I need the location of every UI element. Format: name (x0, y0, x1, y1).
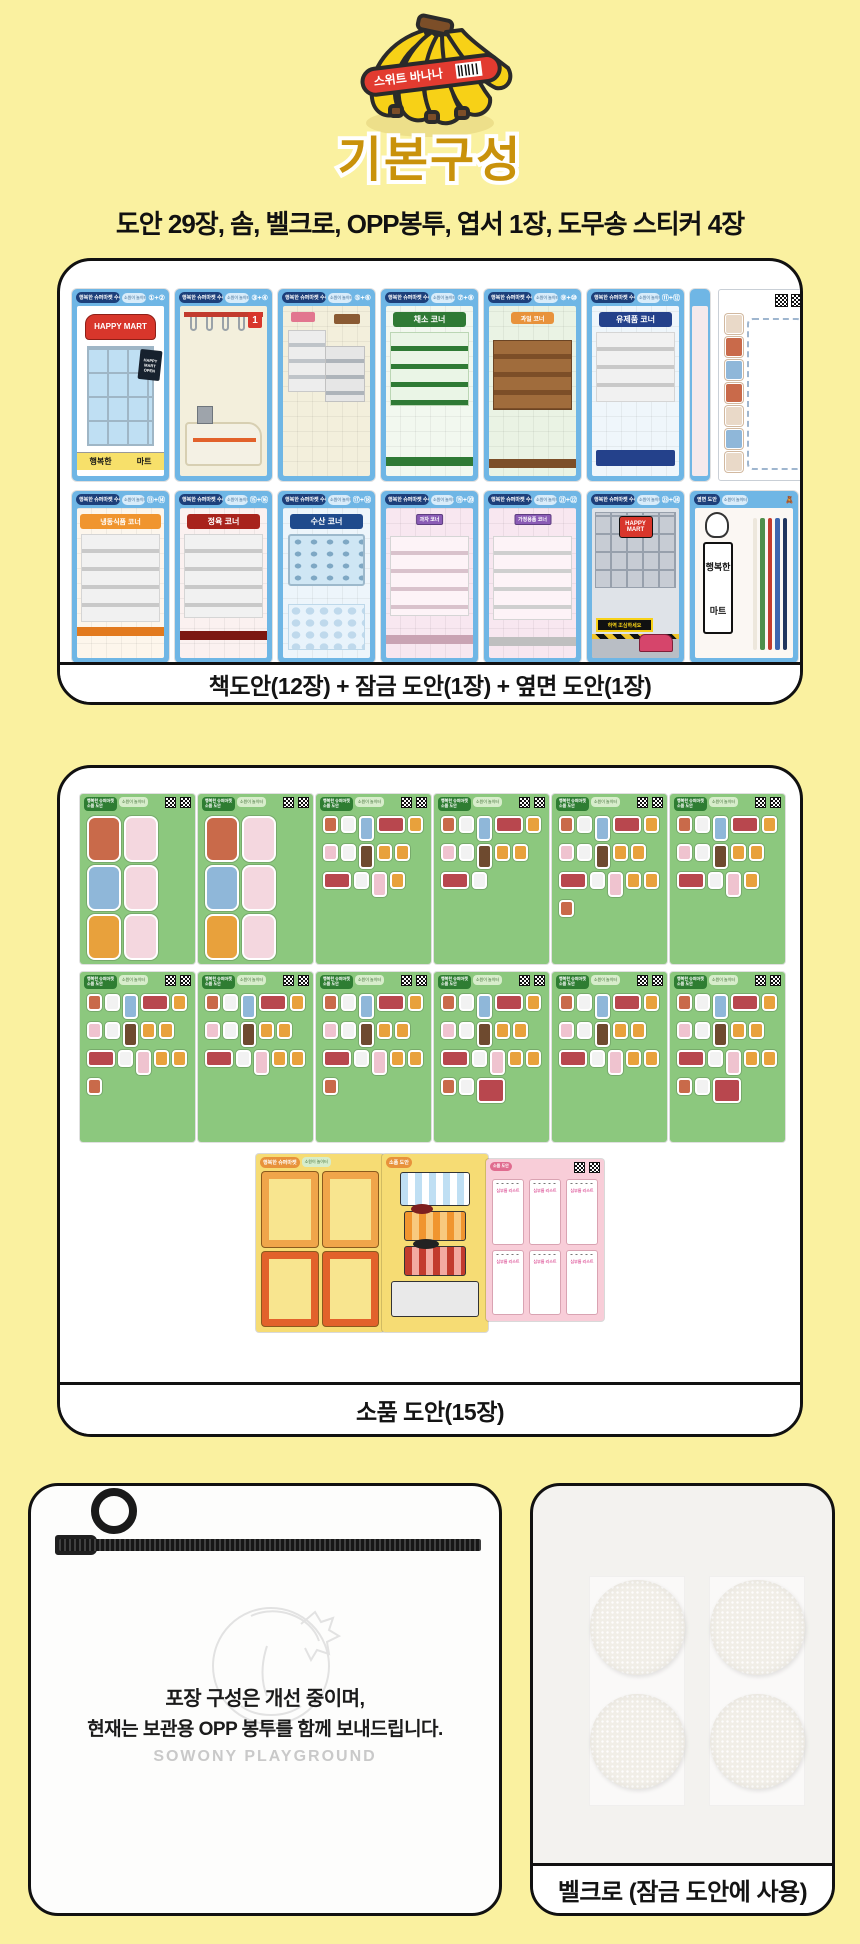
sticker-chip (477, 816, 492, 841)
sticker-chip (608, 872, 623, 897)
sheet-header-sub: 소원이 놀이터 (473, 797, 502, 807)
sticker (725, 383, 743, 403)
velcro-dot (710, 1580, 805, 1675)
corner-banner: 유제품 코너 (599, 312, 672, 327)
book-pages-row-2: 행복한 슈퍼마켓 수록 도안소원이 놀이터⑬+⑭ 냉동식품 코너 행복한 슈퍼마… (72, 491, 803, 663)
sticker-chip (559, 1050, 587, 1067)
sheet-header-label: 소품 도안 (386, 1157, 412, 1168)
opp-note-line2: 현재는 보관용 OPP 봉투를 함께 보내드립니다. (31, 1714, 499, 1741)
page-header-label: 행복한 슈퍼마켓 수록 도안 (385, 292, 429, 303)
appliance-sheet: 소품 도안 (382, 1154, 488, 1332)
page-header-sub: 소원이 놀이터 (534, 495, 557, 505)
page-number: ⑲+⑳ (456, 495, 474, 505)
sheet-header: 행복한 슈퍼마켓소품 도안소원이 놀이터 (556, 797, 663, 811)
sticker-chip (87, 865, 121, 911)
memo-pad: 심부름 리스트 (529, 1179, 561, 1245)
sticker-chip (762, 1050, 777, 1067)
memo-pad: 심부름 리스트 (492, 1179, 524, 1245)
door-panel (323, 1252, 379, 1327)
book-page-aisle: 행복한 슈퍼마켓 수록 도안소원이 놀이터⑤+⑥ (278, 289, 375, 481)
velcro-caption: 벨크로 (잠금 도안에 사용) (533, 1863, 832, 1913)
shelf-base (180, 631, 267, 640)
sticker-chip (259, 1022, 274, 1039)
qr-code (165, 797, 176, 808)
book-page-meat: 행복한 슈퍼마켓 수록 도안소원이 놀이터⑮+⑯ 정육 코너 (175, 491, 272, 663)
sticker-sheet-produce: 행복한 슈퍼마켓소품 도안소원이 놀이터 (670, 794, 785, 964)
sheet-header-sub: 소원이 놀이터 (355, 797, 384, 807)
sticker-chip (626, 1050, 641, 1067)
sticker-chip (644, 994, 659, 1011)
sheet-header-sub: 소원이 놀이터 (237, 975, 266, 985)
cash-register (197, 406, 213, 424)
sticker-chip (677, 1050, 705, 1067)
sticker-chip (613, 994, 641, 1011)
fruit-wood-shelves (493, 340, 572, 410)
sheet-header: 행복한 슈퍼마켓소품 도안소원이 놀이터 (202, 975, 309, 989)
book-page-dairy: 행복한 슈퍼마켓 수록 도안소원이 놀이터⑪+⑫ 유제품 코너 (587, 289, 684, 481)
sticker-chip (590, 1050, 605, 1067)
page-number: ①+② (148, 294, 165, 302)
sticker-chip (372, 1050, 387, 1075)
lock-cut-outline (747, 318, 803, 470)
sticker-chip (713, 1078, 741, 1103)
aisle-art (283, 306, 370, 476)
book-page-checkout: 행복한 슈퍼마켓 수록 도안소원이 놀이터③+④ 1 (175, 289, 272, 481)
sticker-chip (695, 1022, 710, 1039)
door-panel (323, 1172, 379, 1247)
side-sheet-art: 행복한 마트 (695, 508, 793, 658)
sticker-chip (526, 1050, 541, 1067)
sheet-header: 행복한 슈퍼마켓소품 도안소원이 놀이터 (320, 797, 427, 811)
qr-code (416, 975, 427, 986)
sticker-chip (205, 994, 220, 1011)
sticker-chip (242, 816, 276, 862)
sticker-chip (677, 816, 692, 833)
sticker-grid (85, 814, 190, 959)
sticker-chip (495, 1022, 510, 1039)
sticker-chip (695, 994, 710, 1011)
sticker-chip (695, 816, 710, 833)
checkout-counter-sticker (391, 1281, 479, 1317)
storefront-art: HAPPY MART HAPPY MART OPEN 행복한 마트 (77, 306, 164, 476)
sticker-chip (323, 1050, 351, 1067)
page-header-label: 행복한 슈퍼마켓 수록 도안 (488, 494, 532, 505)
page-number: ⑬+⑭ (147, 495, 165, 505)
sticker-chip (341, 994, 356, 1011)
sheet-header: 행복한 슈퍼마켓소품 도안소원이 놀이터 (556, 975, 663, 989)
sticker-chip (87, 1022, 102, 1039)
sticker-chip (205, 816, 239, 862)
sheet-header-label: 행복한 슈퍼마켓 (260, 1157, 300, 1168)
household-art: 가정용품 코너 (489, 508, 576, 658)
sticker-chip (441, 1022, 456, 1039)
card2-caption: 소품 도안(15장) (60, 1382, 800, 1434)
sticker-chip (613, 816, 641, 833)
sticker-sheet-fish-meat: 행복한 슈퍼마켓소품 도안소원이 놀이터 (316, 972, 431, 1142)
frozen-shelves (81, 534, 160, 622)
sticker-chip (644, 816, 659, 833)
sticker-chip (323, 816, 338, 833)
sheet-header-sub: 소원이 놀이터 (355, 975, 384, 985)
sticker-chip (241, 994, 256, 1019)
sticker-chip (359, 816, 374, 841)
sheet-header-label: 행복한 슈퍼마켓소품 도안 (320, 975, 353, 989)
sticker-grid (675, 814, 780, 959)
sticker-chip (341, 844, 356, 861)
memo-pad: 심부름 리스트 (566, 1250, 598, 1316)
sheet-header-label: 행복한 슈퍼마켓소품 도안 (320, 797, 353, 811)
sticker-chip (242, 914, 276, 960)
sticker-chip (441, 994, 456, 1011)
sticker-chip (377, 844, 392, 861)
lock-sheet (718, 289, 803, 481)
page-subtitle: 도안 29장, 솜, 벨크로, OPP봉투, 엽서 1장, 도무송 스티커 4장 (0, 204, 860, 241)
sticker-grid (203, 992, 308, 1137)
qr-code (283, 797, 294, 808)
zipper-ring-pull (91, 1488, 137, 1534)
qr-code (283, 975, 294, 986)
shelf-unit (288, 330, 326, 392)
sticker-sheet-characters-2: 행복한 슈퍼마켓소품 도안소원이 놀이터 (198, 794, 313, 964)
sheet-header: 행복한 슈퍼마켓소품 도안소원이 놀이터 (320, 975, 427, 989)
sticker-chip (354, 1050, 369, 1067)
sticker-chip (495, 844, 510, 861)
sticker-chip (124, 816, 158, 862)
sheet-header: 행복한 슈퍼마켓소품 도안소원이 놀이터 (674, 797, 781, 811)
sticker-chip (731, 844, 746, 861)
book-pages-card: 행복한 슈퍼마켓 수록 도안소원이 놀이터①+② HAPPY MART HAPP… (57, 258, 803, 705)
sticker-chip (472, 1050, 487, 1067)
sticker-chip (359, 994, 374, 1019)
bottom-sign-right: 마트 (137, 456, 152, 467)
corner-mini-sign: 과자 코너 (416, 514, 444, 525)
qr-code (770, 797, 781, 808)
sticker (725, 337, 743, 357)
sticker-chip (472, 872, 487, 889)
sticker-chip (459, 994, 474, 1011)
sticker-chip (708, 872, 723, 889)
hazard-sign: 하역 조심하세요 (596, 618, 653, 632)
qr-code (401, 797, 412, 808)
sticker-chip (613, 844, 628, 861)
prop-sheets-card: 행복한 슈퍼마켓소품 도안소원이 놀이터 행복한 슈퍼마켓소품 도안소원이 놀이… (57, 765, 803, 1437)
sticker-chip (626, 872, 641, 889)
shelf-base (386, 457, 473, 466)
sticker-chip (441, 872, 469, 889)
sticker-chip (559, 994, 574, 1011)
book-page-fruit: 행복한 슈퍼마켓 수록 도안소원이 놀이터⑨+⑩ 과일 코너 (484, 289, 581, 481)
corner-banner: 정육 코너 (187, 514, 260, 529)
sheet-header-sub: 소원이 놀이터 (119, 797, 148, 807)
sticker-chip (277, 1022, 292, 1039)
page-header-sub: 소원이 놀이터 (122, 495, 145, 505)
sticker-chip (495, 816, 523, 833)
sticker-chip (744, 1050, 759, 1067)
sticker-chip (595, 994, 610, 1019)
sticker-chip (124, 914, 158, 960)
ice-bin (288, 604, 365, 650)
vertical-mart-sign: 행복한 마트 (703, 542, 733, 634)
sticker-chip (290, 1050, 305, 1067)
corner-banner: 과일 코너 (511, 312, 555, 324)
sticker-chip (559, 872, 587, 889)
sticker-chip (323, 1022, 338, 1039)
sticker-chip (677, 1078, 692, 1095)
sticker-chip (223, 994, 238, 1011)
sticker (725, 429, 743, 449)
sticker-chip (395, 1022, 410, 1039)
sticker-chip (242, 865, 276, 911)
sticker-chip (677, 872, 705, 889)
page-number: ⑤+⑥ (354, 294, 371, 302)
sticker-sheet-bottles: 행복한 슈퍼마켓소품 도안소원이 놀이터 (552, 794, 667, 964)
green-sheets-row-1: 행복한 슈퍼마켓소품 도안소원이 놀이터 행복한 슈퍼마켓소품 도안소원이 놀이… (80, 794, 785, 964)
sticker-sheet-jars: 행복한 슈퍼마켓소품 도안소원이 놀이터 (552, 972, 667, 1142)
sticker-chip (477, 1022, 492, 1047)
sheet-header-label: 행복한 슈퍼마켓소품 도안 (556, 975, 589, 989)
sheet-header-sub: 소원이 놀이터 (302, 1157, 331, 1167)
qr-code (574, 1162, 585, 1173)
sticker-chip (731, 816, 759, 833)
door-panel (262, 1252, 318, 1327)
sheet-header-label: 행복한 슈퍼마켓소품 도안 (556, 797, 589, 811)
qr-code (534, 975, 545, 986)
qr-code (791, 294, 803, 307)
page-header-label: 행복한 슈퍼마켓 수록 도안 (179, 292, 223, 303)
sticker-chip (577, 994, 592, 1011)
sticker-chip (87, 994, 102, 1011)
shelf-unit (325, 346, 365, 402)
sheet-header-label: 행복한 슈퍼마켓소품 도안 (84, 975, 117, 989)
sticker-chip (708, 1050, 723, 1067)
opp-note-line1: 포장 구성은 개선 중이며, (31, 1682, 499, 1711)
mini-fridge-sticker (400, 1172, 470, 1206)
sheet-header-sub: 소원이 놀이터 (591, 975, 620, 985)
qr-code (589, 1162, 600, 1173)
sign-text-top: 행복한 (706, 560, 731, 573)
qr-code (652, 975, 663, 986)
memo-sheet: 소품 도안 심부름 리스트 심부름 리스트 심부름 리스트 심부름 리스트 심부… (486, 1159, 604, 1321)
sticker-chip (354, 872, 369, 889)
lock-sticker-column (725, 314, 743, 472)
bottom-sign-left: 행복한 (90, 456, 112, 467)
warmer-red-sticker (404, 1246, 466, 1276)
sticker-chip (141, 994, 169, 1011)
sticker-chip (459, 844, 474, 861)
sticker-chip (87, 816, 121, 862)
door-panel (262, 1172, 318, 1247)
sticker-chip (677, 1022, 692, 1039)
sticker-chip (526, 816, 541, 833)
sticker-chip (390, 872, 405, 889)
page-header-label: 행복한 슈퍼마켓 수록 도안 (591, 494, 635, 505)
dairy-art: 유제품 코너 (592, 306, 679, 476)
sticker-chip (223, 1022, 238, 1039)
sticker-chip (513, 1022, 528, 1039)
side-sheet: 옆면 도안소원이 놀이터🧸 행복한 마트 (690, 491, 798, 663)
sticker-sheet-snacks: 행복한 슈퍼마켓소품 도안소원이 놀이터 (434, 972, 549, 1142)
sticker-chip (477, 844, 492, 869)
sticker-chip (559, 844, 574, 861)
sticker-chip (359, 844, 374, 869)
sticker-chip (595, 1022, 610, 1047)
zipper-bar (59, 1539, 481, 1551)
sticker-chip (441, 1050, 469, 1067)
sticker-chip (644, 1050, 659, 1067)
sticker-chip (595, 844, 610, 869)
page-number: 🧸 (785, 496, 794, 504)
sticker-chip (323, 844, 338, 861)
sticker-chip (577, 844, 592, 861)
hook (238, 317, 245, 331)
sticker-grid (321, 992, 426, 1137)
sticker-chip (577, 816, 592, 833)
pink-car (639, 634, 673, 652)
page-header-label: 행복한 슈퍼마켓 수록 도안 (488, 292, 532, 303)
velcro-dot (710, 1694, 805, 1789)
storefront-bottom-sign: 행복한 마트 (77, 452, 164, 470)
sheet-header-sub: 소원이 놀이터 (709, 975, 738, 985)
sticker-grid (321, 814, 426, 959)
sheet-header-label: 행복한 슈퍼마켓소품 도안 (202, 797, 235, 811)
page-header-sub: 소원이 놀이터 (637, 293, 660, 303)
sticker-chip (254, 1050, 269, 1075)
sticker-chip (713, 816, 728, 841)
sticker-chip (677, 994, 692, 1011)
sign-text-bottom: 마트 (710, 604, 727, 617)
sticker-chip (477, 1078, 505, 1103)
sticker-sheet-deli: 행복한 슈퍼마켓소품 도안소원이 놀이터 (198, 972, 313, 1142)
household-shelves (493, 536, 572, 620)
sheet-header-label: 소품 도안 (490, 1162, 512, 1171)
lane-number-sign: 1 (248, 312, 262, 328)
sticker-chip (377, 816, 405, 833)
sticker-chip (595, 816, 610, 841)
sticker-chip (377, 1022, 392, 1039)
qr-code (770, 975, 781, 986)
sticker-chip (441, 1078, 456, 1095)
sticker-chip (87, 914, 121, 960)
qr-code (401, 975, 412, 986)
vegetable-art: 채소 코너 (386, 306, 473, 476)
sheet-header-label: 행복한 슈퍼마켓소품 도안 (674, 975, 707, 989)
sticker-chip (459, 1022, 474, 1039)
sheet-header-label: 행복한 슈퍼마켓소품 도안 (438, 975, 471, 989)
green-sheets-row-2: 행복한 슈퍼마켓소품 도안소원이 놀이터 행복한 슈퍼마켓소품 도안소원이 놀이… (80, 972, 785, 1142)
qr-code (637, 975, 648, 986)
sticker-chip (272, 1050, 287, 1067)
sticker-chip (477, 994, 492, 1019)
sticker (725, 360, 743, 380)
sticker-grid (203, 814, 308, 959)
sheet-header: 행복한 슈퍼마켓소품 도안소원이 놀이터 (202, 797, 309, 811)
sticker-chip (124, 865, 158, 911)
sheet-header: 행복한 슈퍼마켓소품 도안소원이 놀이터 (84, 797, 191, 811)
sticker-chip (726, 1050, 741, 1075)
qr-code (519, 797, 530, 808)
sticker-chip (159, 1022, 174, 1039)
sticker-chip (608, 1050, 623, 1075)
page-header-label: 행복한 슈퍼마켓 수록 도안 (282, 494, 326, 505)
page-number: ⑦+⑧ (457, 294, 474, 302)
page-header-sub: 소원이 놀이터 (328, 293, 352, 303)
sticker-chip (105, 994, 120, 1011)
sticker-chip (441, 816, 456, 833)
sticker-chip (613, 1022, 628, 1039)
sheet-header-label: 행복한 슈퍼마켓소품 도안 (438, 797, 471, 811)
memo-pad: 심부름 리스트 (529, 1250, 561, 1316)
sticker-chip (559, 816, 574, 833)
sticker-grid (85, 992, 190, 1137)
meat-shelves (184, 534, 263, 618)
corner-banner: 냉동식품 코너 (80, 514, 160, 529)
page-number: ③+④ (251, 294, 268, 302)
sticker-chip (236, 1050, 251, 1067)
sticker-chip (731, 994, 759, 1011)
sticker-chip (731, 1022, 746, 1039)
sheet-header-label: 행복한 슈퍼마켓소품 도안 (202, 975, 235, 989)
page-header-label: 행복한 슈퍼마켓 수록 도안 (591, 292, 635, 303)
sheet-header: 행복한 슈퍼마켓소품 도안소원이 놀이터 (438, 797, 545, 811)
sticker-chip (172, 1050, 187, 1067)
sticker-chip (141, 1022, 156, 1039)
sheet-header-sub: 소원이 놀이터 (591, 797, 620, 807)
aisle-sign-pink (291, 312, 315, 322)
exterior-art: HAPPY MART 하역 조심하세요 (592, 508, 679, 658)
sticker-chip (677, 844, 692, 861)
opp-bag-card: 포장 구성은 개선 중이며, 현재는 보관용 OPP 봉투를 함께 보내드립니다… (28, 1483, 502, 1916)
sticker-chip (154, 1050, 169, 1067)
qr-code (755, 797, 766, 808)
page-header-label: 행복한 슈퍼마켓 수록 도안 (179, 494, 223, 505)
aisle-sign-brown (334, 314, 360, 324)
sticker-chip (631, 1022, 646, 1039)
sheet-header-sub: 소원이 놀이터 (237, 797, 266, 807)
sticker-chip (390, 1050, 405, 1067)
snack-shelves (390, 536, 469, 616)
shelf-base (489, 459, 576, 468)
sticker-chip (341, 816, 356, 833)
sticker-chip (372, 872, 387, 897)
sticker-chip (490, 1050, 505, 1075)
sticker-sheet-bags-carts: 행복한 슈퍼마켓소품 도안소원이 놀이터 (434, 794, 549, 964)
sheet-header-sub: 소원이 놀이터 (709, 797, 738, 807)
page-header-label: 행복한 슈퍼마켓 수록 도안 (385, 494, 429, 505)
qr-code (180, 975, 191, 986)
page-header-sub: 소원이 놀이터 (534, 293, 558, 303)
sticker-chip (495, 994, 523, 1011)
page-header-sub: 소원이 놀이터 (122, 293, 146, 303)
sticker-chip (441, 844, 456, 861)
sticker (725, 314, 743, 334)
sticker-chip (205, 865, 239, 911)
book-page-frozen: 행복한 슈퍼마켓 수록 도안소원이 놀이터⑬+⑭ 냉동식품 코너 (72, 491, 169, 663)
sheet-header-sub: 소원이 놀이터 (473, 975, 502, 985)
sticker (725, 452, 743, 472)
fruit-art: 과일 코너 (489, 306, 576, 476)
sticker (725, 406, 743, 426)
sheet-header-label: 행복한 슈퍼마켓소품 도안 (674, 797, 707, 811)
page-header-sub: 소원이 놀이터 (431, 495, 454, 505)
sticker-chip (136, 1050, 151, 1075)
sticker-chip (762, 816, 777, 833)
sticker-chip (726, 872, 741, 897)
sticker-chip (359, 1022, 374, 1047)
sticker-chip (87, 1050, 115, 1067)
sticker-chip (172, 994, 187, 1011)
page-number: ⑨+⑩ (560, 294, 577, 302)
sticker-chip (459, 816, 474, 833)
